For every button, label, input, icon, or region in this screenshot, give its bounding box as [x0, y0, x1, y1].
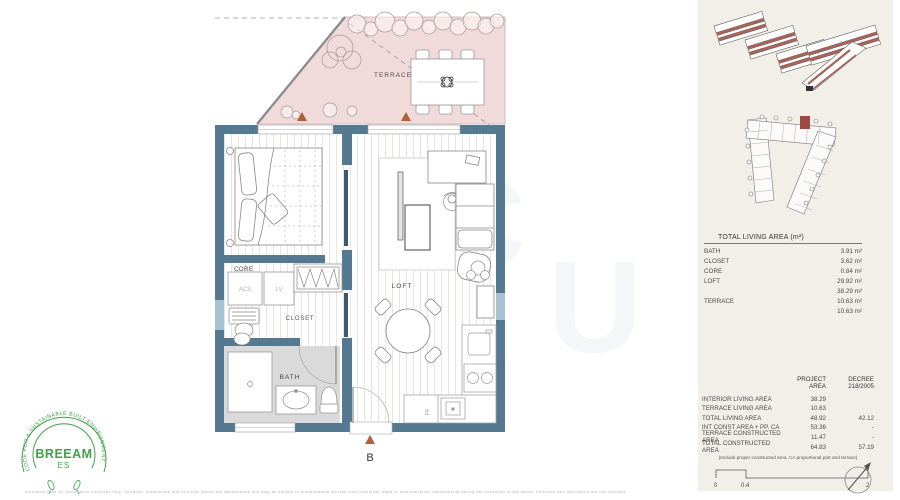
sideboard — [477, 286, 494, 318]
sofa — [456, 184, 494, 250]
unit-marker-axon — [806, 86, 813, 91]
entry-label: B — [366, 452, 373, 464]
desk — [428, 151, 486, 183]
bath-label: BATH — [280, 374, 301, 381]
breeam-logo: CODE FOR A SUSTAINABLE BUILT ENVIRONMENT… — [22, 411, 106, 494]
left-wall-window — [215, 300, 224, 330]
fridge-label: FR — [425, 408, 431, 415]
acs-label: ACS — [239, 287, 251, 293]
side-panel — [698, 0, 893, 491]
closet-label: CLOSET — [286, 316, 315, 322]
tv-console — [398, 172, 403, 240]
breeam-sub: ES — [58, 461, 71, 470]
plan-drawing: C U TERRACE — [0, 0, 900, 500]
breeam-name: BREEAM — [35, 447, 92, 461]
terrace-area: TERRACE — [215, 12, 505, 127]
closet-sliding-door — [344, 293, 348, 337]
round-table — [386, 309, 430, 353]
unit-highlight — [800, 116, 810, 129]
shower-tray — [228, 352, 272, 412]
lv-label: LV — [276, 287, 283, 293]
terrace-label: TERRACE — [374, 72, 412, 79]
right-wall-window — [496, 293, 505, 320]
bedroom-sliding-door — [344, 170, 348, 246]
sink — [468, 333, 490, 355]
fine-print: Indicative plan for information purposes… — [25, 489, 877, 494]
svg-text:U: U — [548, 234, 642, 380]
wardrobe — [294, 264, 342, 292]
loft-label: LOFT — [392, 283, 413, 290]
hob — [464, 364, 496, 392]
coffee-table — [405, 205, 430, 250]
bedroom — [227, 148, 323, 247]
terrace-dining-table — [411, 50, 484, 114]
core-label: CORE — [234, 267, 253, 273]
floor-plan-sheet: C U TERRACE — [0, 0, 900, 500]
entry-triangle — [365, 435, 375, 444]
